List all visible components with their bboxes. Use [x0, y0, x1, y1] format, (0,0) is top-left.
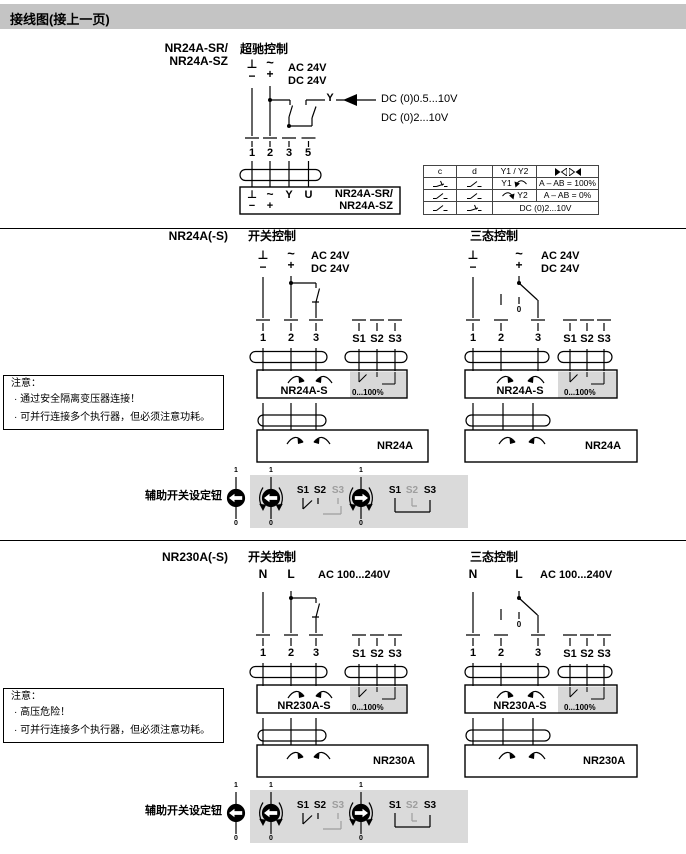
signal-y-label: Y [326, 93, 333, 105]
signal-arrow-icon [343, 94, 357, 106]
table-header-y: Y1 / Y2 [493, 166, 537, 178]
row2-d-switch [457, 190, 493, 202]
aux-s1-label: S1 [389, 486, 401, 497]
wiring-diagram-page: 接线图(接上一页) [0, 0, 686, 854]
switch-open-icon [467, 192, 482, 200]
supply-dc-label: DC 24V [541, 264, 580, 276]
aux-s1-label: S1 [389, 801, 401, 812]
valve-icon [569, 168, 581, 176]
model-line-1: NR24A-SR/ [148, 42, 228, 55]
note-title: 注意： [11, 379, 41, 390]
y2-label: Y2 [517, 191, 527, 200]
switch-open-icon [433, 192, 448, 200]
cw-arrow-icon [501, 191, 515, 201]
terminal-1-label: 1 [260, 648, 266, 660]
switch-control-title: 开关控制 [248, 230, 296, 243]
switch-closed-icon [467, 204, 482, 212]
range-label: 0...100% [564, 389, 596, 398]
knob-pos-0: 0 [269, 835, 273, 843]
note-box-nr230a: 注意： · 高压危险！ · 可并行连接多个执行器，但必须注意功耗。 [3, 688, 224, 743]
table-header-c: c [424, 166, 457, 178]
note-bullet-2: · 可并行连接多个执行器，但必须注意功耗。 [14, 413, 210, 424]
row3-d-switch [457, 202, 493, 214]
row1-value: A – AB = 100% [537, 178, 598, 190]
knob-pos-0: 0 [234, 520, 238, 528]
aux-s3-label: S3 [332, 801, 344, 812]
range-label: 0...100% [352, 704, 384, 713]
supply-ac-label: AC 24V [311, 251, 350, 263]
table-header-d: d [457, 166, 493, 178]
row1-d-switch [457, 178, 493, 190]
switch-open-icon [433, 204, 448, 212]
terminal-2-label: 2 [288, 648, 294, 660]
signal-range-2: DC (0)2...10V [381, 113, 448, 125]
supply-ac-label: AC 100...240V [318, 570, 390, 582]
aux-s2-label: S2 [406, 801, 418, 812]
note-box-nr24a: 注意： · 通过安全隔离变压器连接！ · 可并行连接多个执行器，但必须注意功耗。 [3, 375, 224, 430]
aux-s3-label: S3 [332, 486, 344, 497]
supply-dc-label: DC 24V [311, 264, 350, 276]
row1-y1-cell: Y1 [493, 178, 537, 190]
actuator-label: NR230A [583, 756, 625, 768]
terminal-s1-label: S1 [563, 649, 576, 661]
terminal-s3-label: S3 [388, 649, 401, 661]
model-label-override: NR24A-SR/ NR24A-SZ [148, 42, 228, 68]
actuator-label: NR24A [377, 441, 413, 453]
model-text: NR230A(-S) [140, 551, 228, 564]
plus-symbol: + [287, 259, 294, 272]
actuator-s-label: NR230A-S [493, 701, 546, 713]
terminal-s3-label: S3 [597, 649, 610, 661]
terminal-s1-label: S1 [352, 334, 365, 346]
terminal-2-label: 2 [498, 648, 504, 660]
terminal-1-label: 1 [260, 333, 266, 345]
plug-y-label: Y [285, 190, 292, 202]
note-bullet-2: · 可并行连接多个执行器，但必须注意功耗。 [14, 726, 210, 737]
model-label-nr230a: NR230A(-S) [140, 551, 228, 564]
terminal-s2-label: S2 [370, 649, 383, 661]
row3-value: DC (0)2...10V [493, 202, 598, 214]
aux-s2-label: S2 [314, 801, 326, 812]
row3-c-switch [424, 202, 457, 214]
supply-ac-label: AC 24V [541, 251, 580, 263]
terminal-s3-label: S3 [388, 334, 401, 346]
aux-s2-label: S2 [406, 486, 418, 497]
supply-dc-label: DC 24V [288, 76, 327, 88]
knob-pos-1: 1 [269, 467, 273, 475]
aux-s1-label: S1 [297, 486, 309, 497]
minus-symbol: − [259, 261, 266, 274]
signal-range-1: DC (0)0.5...10V [381, 94, 457, 106]
row1-c-switch [424, 178, 457, 190]
actuator-s-label: NR24A-S [496, 386, 543, 398]
model-line-2: NR24A-SZ [148, 55, 228, 68]
range-label: 0...100% [564, 704, 596, 713]
table-header-valves [537, 166, 598, 178]
aux-s1-label: S1 [297, 801, 309, 812]
line-symbol: L [287, 568, 294, 581]
plug-plus-label: + [267, 201, 273, 213]
terminal-3-label: 3 [535, 333, 541, 345]
actuator-label: NR230A [373, 756, 415, 768]
note-bullet-1: · 通过安全隔离变压器连接！ [14, 395, 140, 406]
plug-model-line-2: NR24A-SZ [300, 201, 393, 213]
terminal-3-label: 3 [286, 148, 292, 160]
supply-ac-label: AC 100...240V [540, 570, 612, 582]
terminal-3-label: 3 [313, 648, 319, 660]
knob-pos-0: 0 [359, 520, 363, 528]
terminal-3-label: 3 [313, 333, 319, 345]
minus-symbol: − [248, 70, 255, 83]
plug-phase-label: ~ [266, 188, 273, 201]
zero-position-label: 0 [517, 306, 521, 315]
terminal-2-label: 2 [288, 333, 294, 345]
knob-pos-1: 1 [359, 782, 363, 790]
range-label: 0...100% [352, 389, 384, 398]
knob-pos-0: 0 [269, 520, 273, 528]
zero-position-label: 0 [517, 621, 521, 630]
ccw-arrow-icon [514, 179, 528, 189]
plug-minus-label: − [249, 201, 255, 213]
switch-open-icon [467, 180, 482, 188]
aux-s3-label: S3 [424, 486, 436, 497]
note-bullet-1: · 高压危险！ [14, 708, 70, 719]
y1-label: Y1 [501, 179, 511, 188]
knob-pos-0: 0 [359, 835, 363, 843]
terminal-1-label: 1 [470, 333, 476, 345]
terminal-s2-label: S2 [370, 334, 383, 346]
terminal-2-label: 2 [267, 148, 273, 160]
terminal-1-label: 1 [470, 648, 476, 660]
terminal-2-label: 2 [498, 333, 504, 345]
terminal-s2-label: S2 [580, 334, 593, 346]
terminal-s1-label: S1 [563, 334, 576, 346]
actuator-s-label: NR24A-S [280, 386, 327, 398]
terminal-3-label: 3 [535, 648, 541, 660]
knob-pos-1: 1 [359, 467, 363, 475]
minus-symbol: − [469, 261, 476, 274]
actuator-label: NR24A [585, 441, 621, 453]
aux-switch-label: 辅助开关设定钮 [145, 806, 222, 818]
row2-y2-cell: Y2 [493, 190, 537, 202]
knob-pos-0: 0 [234, 835, 238, 843]
tristate-control-title: 三态控制 [470, 551, 518, 564]
model-label-nr24a: NR24A(-S) [148, 230, 228, 243]
aux-s2-label: S2 [314, 486, 326, 497]
terminal-s2-label: S2 [580, 649, 593, 661]
override-function-table: c d Y1 / Y2 Y1 A – AB = 100% Y2 A – AB =… [423, 165, 599, 215]
row2-c-switch [424, 190, 457, 202]
terminal-5-label: 5 [305, 148, 311, 160]
supply-ac-label: AC 24V [288, 63, 327, 75]
aux-switch-label: 辅助开关设定钮 [145, 491, 222, 503]
terminal-s3-label: S3 [597, 334, 610, 346]
tristate-control-title: 三态控制 [470, 230, 518, 243]
override-control-title: 超驰控制 [240, 43, 288, 56]
row2-value: A – AB = 0% [537, 190, 598, 202]
plus-symbol: + [266, 68, 273, 81]
knob-pos-1: 1 [234, 467, 238, 475]
model-text: NR24A(-S) [148, 230, 228, 243]
line-symbol: L [515, 568, 522, 581]
valve-icon [555, 168, 567, 176]
terminal-s1-label: S1 [352, 649, 365, 661]
knob-pos-1: 1 [269, 782, 273, 790]
switch-closed-icon [433, 180, 448, 188]
neutral-symbol: N [259, 568, 268, 581]
note-title: 注意： [11, 692, 41, 703]
terminal-1-label: 1 [249, 148, 255, 160]
knob-pos-1: 1 [234, 782, 238, 790]
neutral-symbol: N [469, 568, 478, 581]
actuator-s-label: NR230A-S [277, 701, 330, 713]
switch-control-title: 开关控制 [248, 551, 296, 564]
plus-symbol: + [515, 259, 522, 272]
plug-model-label: NR24A-SR/ NR24A-SZ [300, 189, 393, 213]
aux-s3-label: S3 [424, 801, 436, 812]
